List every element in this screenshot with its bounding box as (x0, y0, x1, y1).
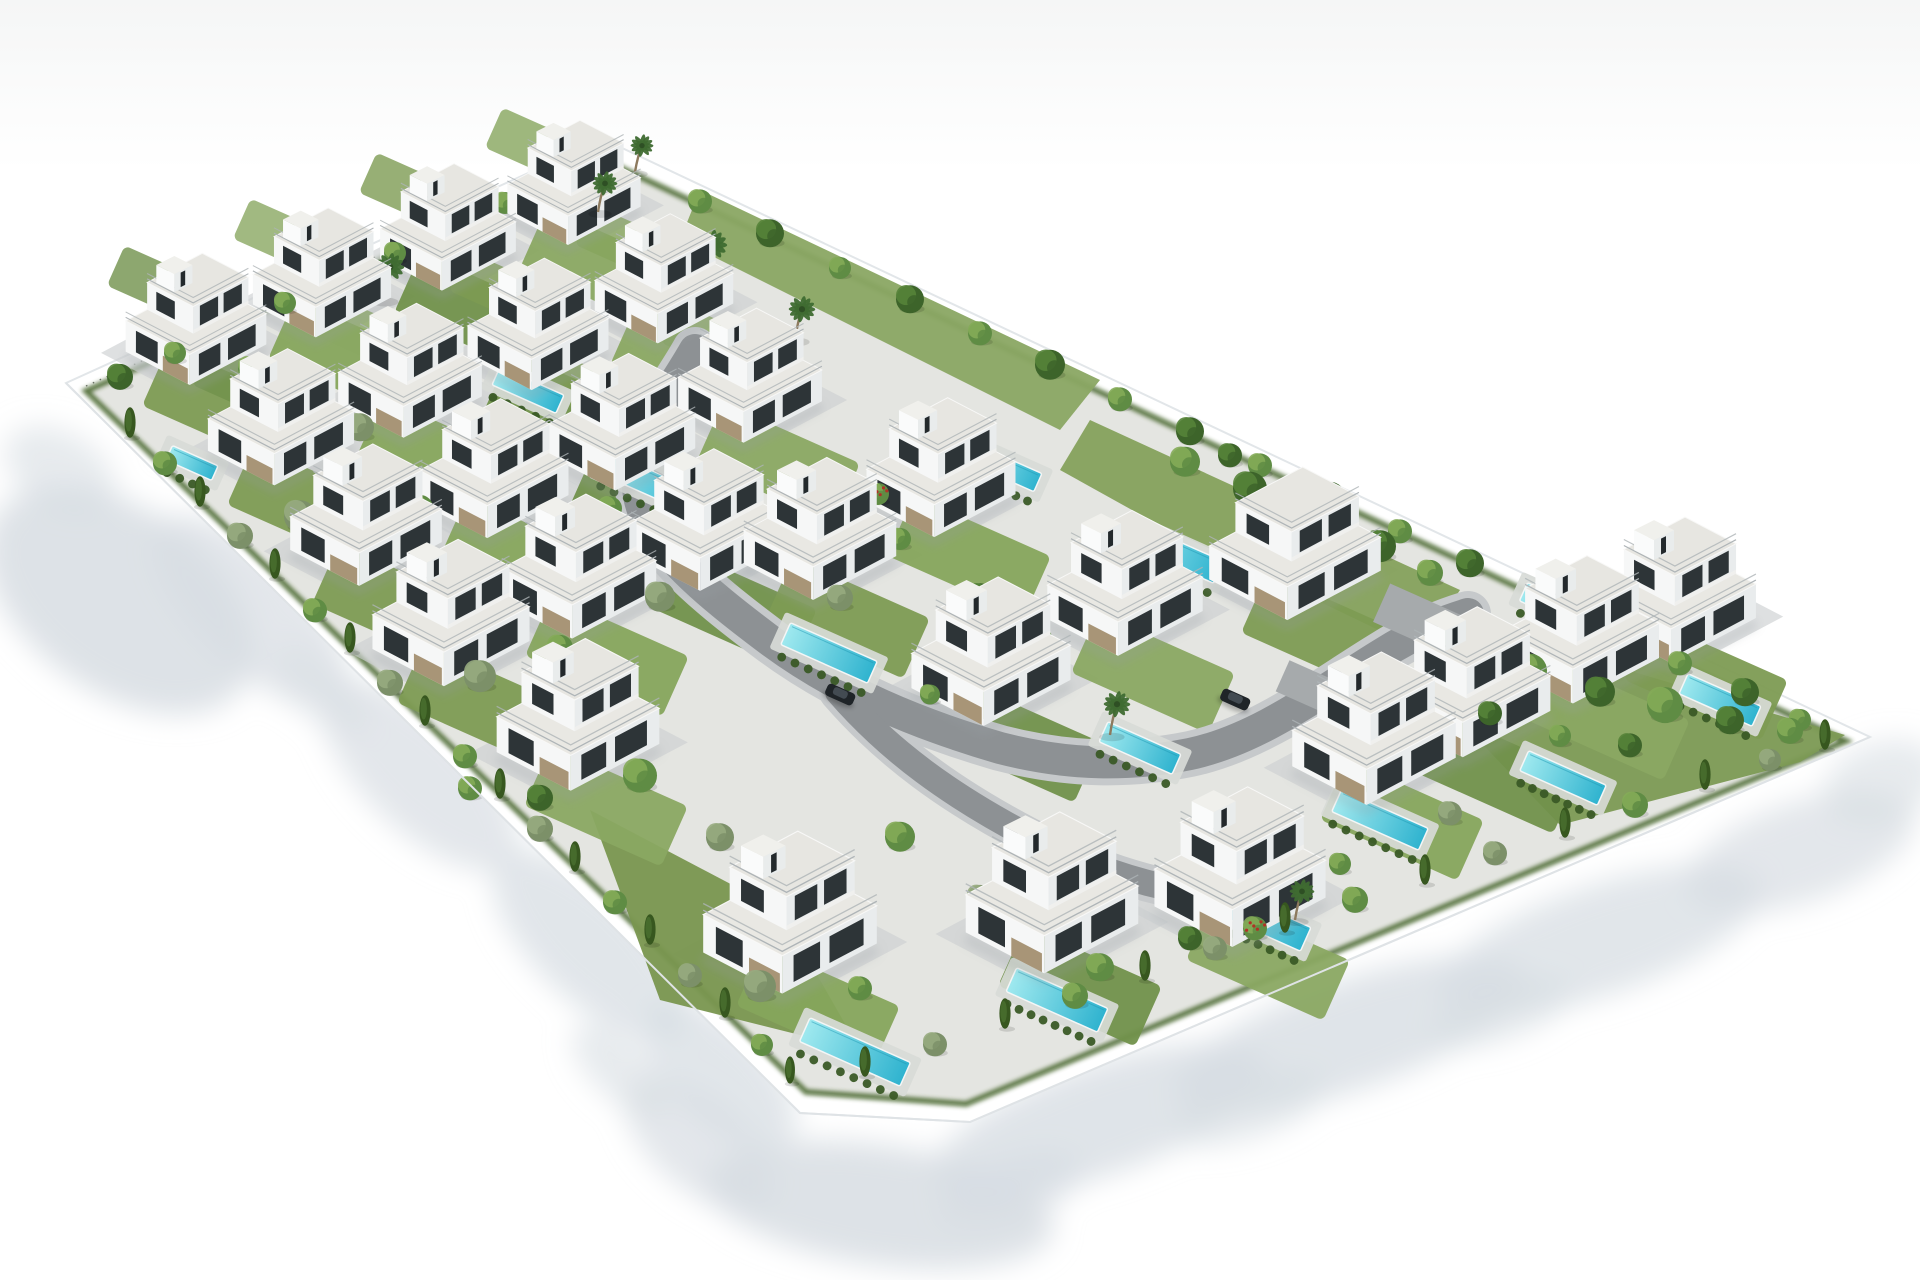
architectural-render-canvas (0, 0, 1920, 1280)
villa-development-aerial-render (0, 0, 1920, 1280)
sky-tint (0, 0, 1920, 170)
